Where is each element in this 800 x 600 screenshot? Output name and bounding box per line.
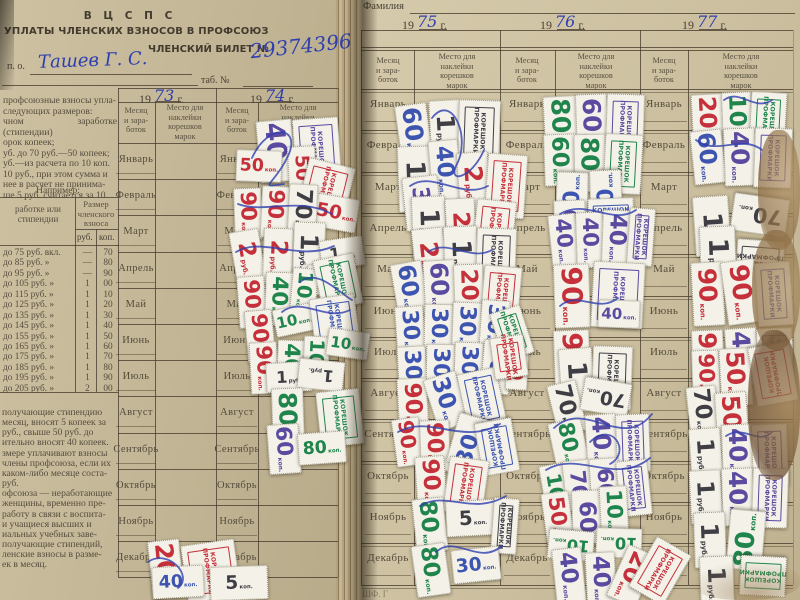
dues-stamp-80: 80коп. [297, 430, 347, 465]
table-line [116, 535, 156, 536]
name-underline [30, 74, 192, 75]
photo-corner-shadow [0, 0, 14, 90]
table-line [504, 575, 550, 576]
rate-row: до 85 руб. »—80 [0, 258, 118, 268]
month-label: Август [119, 407, 153, 418]
table-line [116, 499, 156, 500]
month-label: Август [646, 387, 681, 399]
table-line [641, 534, 687, 535]
stamp-value: 40коп. [601, 304, 637, 323]
month-label: Апрель [369, 222, 406, 234]
stamp-value: 60коп. [270, 425, 298, 472]
month-label: Ноябрь [118, 516, 153, 527]
table-line [641, 121, 687, 122]
rate-unit-rub: руб. [77, 232, 93, 242]
example-label: Например: [36, 185, 80, 196]
stamp-stub-text: КОРЕШОКПРОФМАРКИ [760, 268, 787, 320]
table-line [688, 50, 689, 585]
month-label: Сентябрь [214, 444, 259, 455]
booklet-title: УПЛАТЫ ЧЛЕНСКИХ ВЗНОСОВ В ПРОФСОЮЗ [4, 26, 269, 37]
stamp-value: 70коп. [736, 200, 783, 230]
month-label: Май [653, 263, 675, 275]
month-label: Август [220, 407, 254, 418]
stamp-place-header: Место длянаклейкикорешковмарок [439, 52, 476, 90]
month-label: Январь [509, 98, 545, 110]
stamp-value: 80коп. [302, 437, 342, 460]
table-line [116, 209, 156, 210]
stamp-value: 1руб. [702, 566, 732, 600]
table-line [217, 426, 257, 427]
stamp-stub: КОРЕШОКПРОФМАРКИ [489, 334, 529, 380]
stamp-value: 60коп. [691, 131, 724, 183]
stamp-value: 50коп. [239, 155, 278, 176]
table-line [216, 88, 217, 577]
stamp-place-header: Место длянаклейкикорешковмарок [167, 103, 204, 141]
stamp-stub-text: КОРЕШОКПРОФМАРКИ [759, 135, 787, 182]
dues-stamp-40: 40коп. [151, 565, 205, 600]
dues-stamp-90: 90коп. [553, 263, 591, 328]
year-heading: 19 77 г. [682, 14, 727, 33]
table-line [504, 410, 550, 411]
stamp-place-header: Место длянаклейкикорешковмарок [723, 52, 760, 90]
month-label: Февраль [506, 139, 549, 151]
stamp-stub-text: КОРЕШОКПРОФМАРКИ [497, 505, 514, 548]
stamp-value: 40коп. [554, 550, 585, 600]
table-line [641, 328, 687, 329]
table-line [116, 245, 156, 246]
stamp-stub-text: КОРЕШОКПРОФМАРКИ [463, 106, 495, 155]
table-line [116, 318, 156, 319]
stamp-stub-text: КОРЕШОКПРОФМАРКИ [632, 215, 649, 260]
rate-row: до 145 руб. »140 [0, 321, 118, 331]
stamp-value: 10коп. [329, 333, 367, 356]
rate-row: до 125 руб. »120 [0, 300, 118, 310]
table-line [118, 505, 338, 506]
dues-stamp-60: 60коп. [689, 128, 726, 185]
table-line [116, 354, 156, 355]
dues-stamp-1: 1руб. [699, 555, 735, 600]
rate-header-earnings: работке илистипендии [15, 205, 61, 224]
rate-row: до 75 руб. вкл.—70 [0, 248, 118, 258]
rate-row: до 115 руб. »110 [0, 290, 118, 300]
month-label: Январь [646, 98, 682, 110]
table-line [361, 30, 362, 585]
month-label: Февраль [643, 139, 686, 151]
stamp-stub-text: КОРЕШОКПРОФМАРКИ [496, 342, 522, 373]
table-line [116, 426, 156, 427]
rate-row: до 185 руб. »180 [0, 363, 118, 373]
table-line [641, 286, 687, 287]
dues-stamp-40: 40коп. [551, 547, 587, 600]
rate-row: до 105 руб. »100 [0, 279, 118, 289]
dues-stamp-10: 10коп. [325, 327, 370, 361]
union-dues-booklet-photo: В Ц С П С УПЛАТЫ ЧЛЕНСКИХ ВЗНОСОВ В ПРОФ… [0, 0, 800, 600]
month-label: Июнь [122, 335, 149, 346]
rate-row: до 95 руб. »—90 [0, 269, 118, 279]
stamp-value: 70коп. [584, 383, 627, 411]
rate-row: до 155 руб. »150 [0, 332, 118, 342]
stamp-stub: КОРЕШОКПРОФМАРКИ [626, 207, 656, 267]
table-line [217, 535, 257, 536]
stamp-stub-text: КОРЕШОКПРОФМАРКИ [754, 349, 792, 400]
month-label: Февраль [116, 190, 157, 201]
stamp-value: 1руб. [691, 480, 721, 515]
table-line [365, 575, 411, 576]
month-label: Июль [224, 371, 251, 382]
table-line [116, 173, 156, 174]
table-line [116, 390, 156, 391]
rate-unit-kop: коп. [99, 232, 114, 242]
stamp-value: 2руб. [264, 239, 291, 273]
stamp-value: 1руб. [695, 522, 725, 558]
stamp-value: 5коп. [458, 506, 487, 530]
stamp-stub: КОРЕШОКПРОФМАРКИ [753, 127, 793, 188]
stamp-stub-text: КОРЕШОКПРОФМАРКИ [744, 562, 781, 590]
month-label: Сентябрь [113, 444, 158, 455]
stamp-place-header: Место длянаклейкикорешковмарок [578, 52, 615, 90]
month-label: Март [123, 226, 148, 237]
tab-number-label: таб. № [201, 75, 230, 86]
dues-stamp-40: 40коп. [598, 299, 641, 328]
table-line [0, 245, 118, 246]
stamp-value: 5коп. [225, 572, 253, 594]
month-label: Июль [650, 346, 678, 358]
table-line [116, 282, 156, 283]
dues-stamp-60: 60коп. [266, 423, 301, 475]
year-heading: 19 76 г. [540, 14, 585, 33]
surname-underline [410, 13, 795, 14]
month-label: Июнь [650, 305, 679, 317]
dues-stamp-5: 5коп. [209, 565, 268, 600]
dues-stamp-1: 1руб. [297, 358, 346, 393]
holder-name-handwritten: Ташев Г. С. [38, 48, 148, 73]
stamp-stub: КОРЕШОКПРОФМАРКИ [739, 555, 787, 597]
rate-row: до 195 руб. »190 [0, 373, 118, 383]
stamp-value: 30коп. [455, 552, 497, 577]
month-label: Апрель [118, 263, 154, 274]
table-line [116, 463, 156, 464]
rate-row: до 135 руб. »130 [0, 311, 118, 321]
month-label: Март [651, 181, 677, 193]
stamp-value: 10коп. [275, 308, 313, 333]
month-label: Октябрь [217, 480, 257, 491]
month-earnings-header: Месяци зара-боток [515, 56, 539, 85]
table-line [793, 30, 794, 585]
table-line [217, 499, 257, 500]
rate-row: до 205 руб. »200 [0, 384, 118, 394]
table-line [361, 50, 793, 51]
table-line [361, 47, 793, 48]
month-earnings-header: Месяци зара-боток [652, 56, 676, 85]
table-line [217, 463, 257, 464]
stamp-value: 40коп. [158, 571, 198, 593]
dues-stamp-80: 80коп. [411, 542, 452, 598]
month-label: Июль [123, 371, 150, 382]
month-label: Ноябрь [219, 516, 254, 527]
membership-rules-text: получающие стипендиюмесяц, вносят 5 копе… [2, 408, 117, 571]
month-label: Ноябрь [370, 511, 407, 523]
dues-stamp-40: 40коп. [723, 127, 757, 186]
stamp-stub: КОРЕШОКПРОФМАРКИ [754, 261, 794, 327]
stamp-value: 80коп. [415, 545, 447, 596]
table-line [641, 369, 687, 370]
dues-stamp-70: 70коп. [730, 192, 791, 237]
footer-print-code: ШФ. Г [362, 589, 388, 599]
table-line [365, 493, 411, 494]
month-label: Январь [119, 154, 154, 165]
org-name: В Ц С П С [84, 10, 177, 22]
stamp-value: 2руб. [232, 240, 263, 277]
month-earnings-header: Месяци зара-боток [376, 56, 400, 85]
table-line [365, 534, 411, 535]
rate-table-rows: до 75 руб. вкл.—70до 85 руб. »—80до 95 р… [0, 248, 118, 394]
table-line [118, 469, 338, 470]
month-label: Октябрь [116, 480, 156, 491]
stamp-value: 90коп. [554, 266, 589, 326]
rate-row: до 175 руб. »170 [0, 352, 118, 362]
dues-stamp-30: 30коп. [450, 546, 501, 585]
table-line [118, 396, 338, 397]
rate-row: до 165 руб. »160 [0, 342, 118, 352]
month-label: Октябрь [367, 470, 409, 482]
month-label: Май [126, 299, 147, 310]
table-line [641, 204, 687, 205]
month-earnings-header: Месяци зара-боток [124, 106, 148, 135]
table-line [365, 245, 411, 246]
table-line [641, 410, 687, 411]
stamp-value: 90коп. [692, 267, 724, 320]
stamp-value: 40коп. [577, 217, 604, 263]
stamp-value: 1руб. [307, 364, 335, 386]
month-label: Октябрь [643, 470, 685, 482]
stamp-value: 40коп. [549, 217, 579, 265]
year-heading: 19 75 г. [402, 14, 447, 33]
surname-label: Фамилия [363, 1, 404, 12]
stamp-value: 1руб. [691, 437, 721, 472]
month-earnings-header: Месяци зара-боток [225, 106, 249, 135]
stamp-value: 40коп. [725, 130, 756, 183]
rate-header-amount: Размерчленскоговзноса [78, 200, 114, 229]
month-label: Декабрь [367, 552, 409, 564]
table-line [641, 162, 687, 163]
dues-stamp-50: 50коп. [235, 149, 282, 183]
